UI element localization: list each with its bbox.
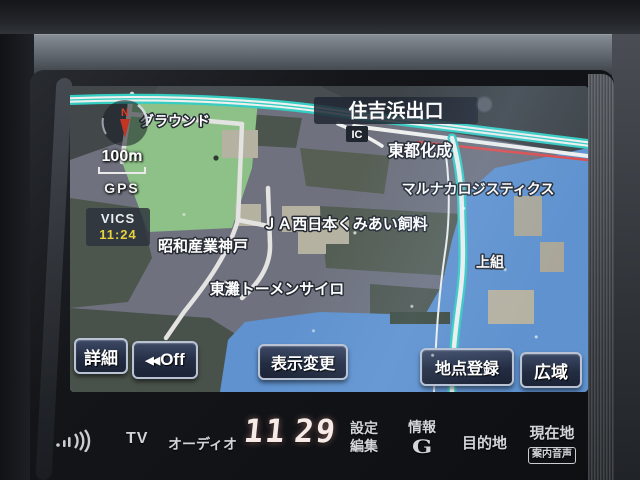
display-change-button[interactable]: 表示変更	[258, 344, 348, 380]
nav-touchscreen[interactable]: 住吉浜出口 IC グラウンド 東都化成 マルナカロジスティクス ＪＡ西日本くみあ…	[70, 86, 588, 392]
clock-hours: 11	[242, 412, 289, 450]
tv-button[interactable]: TV	[126, 430, 148, 448]
detail-button[interactable]: 詳細	[74, 338, 128, 374]
dashboard-left-edge	[0, 34, 34, 480]
dashboard-right-edge	[612, 34, 640, 480]
label-tomen-silo: 東灘トーメンサイロ	[210, 280, 344, 298]
destination-button[interactable]: 目的地	[462, 432, 507, 453]
settings-edit-button[interactable]: 設定 編集	[350, 420, 378, 455]
gps-indicator: GPS	[96, 180, 148, 196]
clock-minutes: 29	[293, 412, 340, 450]
scale-bracket	[98, 167, 146, 174]
volume-signal-icon	[54, 428, 96, 457]
map-scale: 100m	[94, 148, 150, 174]
label-marunaka: マルナカロジスティクス	[402, 181, 555, 197]
exit-label: 住吉浜出口	[348, 99, 443, 122]
guide-voice-badge: 案内音声	[528, 447, 576, 464]
clock-display: 1129	[242, 412, 339, 450]
audio-button[interactable]: オーディオ	[168, 434, 237, 454]
label-toutokasei: 東都化成	[388, 141, 452, 160]
compass-north-label: N	[121, 107, 129, 119]
vics-indicator: VICS 11:24	[86, 208, 150, 246]
label-ja-feed: ＪＡ西日本くみあい飼料	[262, 215, 428, 233]
point-register-button[interactable]: 地点登録	[420, 348, 514, 386]
vics-label: VICS	[86, 211, 150, 227]
hardware-panel: TV オーディオ 1129 設定 編集 情報 G 目的地 現在地 案内音声	[38, 400, 614, 480]
label-showa-sangyo: 昭和産業神戸	[158, 237, 248, 255]
label-kamigumi: 上組	[476, 254, 504, 270]
scale-value: 100m	[102, 148, 143, 165]
g-book-icon: G	[412, 437, 432, 458]
current-location-button[interactable]: 現在地 案内音声	[528, 422, 576, 464]
vics-time: 11:24	[86, 227, 150, 243]
dashboard-top	[0, 0, 640, 36]
wide-area-button[interactable]: 広域	[520, 352, 582, 388]
voice-guide-off-button[interactable]: ◀◀ Off	[132, 341, 198, 379]
compass-button[interactable]: N	[98, 96, 152, 150]
rewind-icon: ◀◀	[145, 354, 158, 367]
ic-badge: IC	[352, 129, 363, 141]
info-button[interactable]: 情報 G	[408, 420, 436, 458]
dashboard-shelf	[0, 34, 640, 75]
